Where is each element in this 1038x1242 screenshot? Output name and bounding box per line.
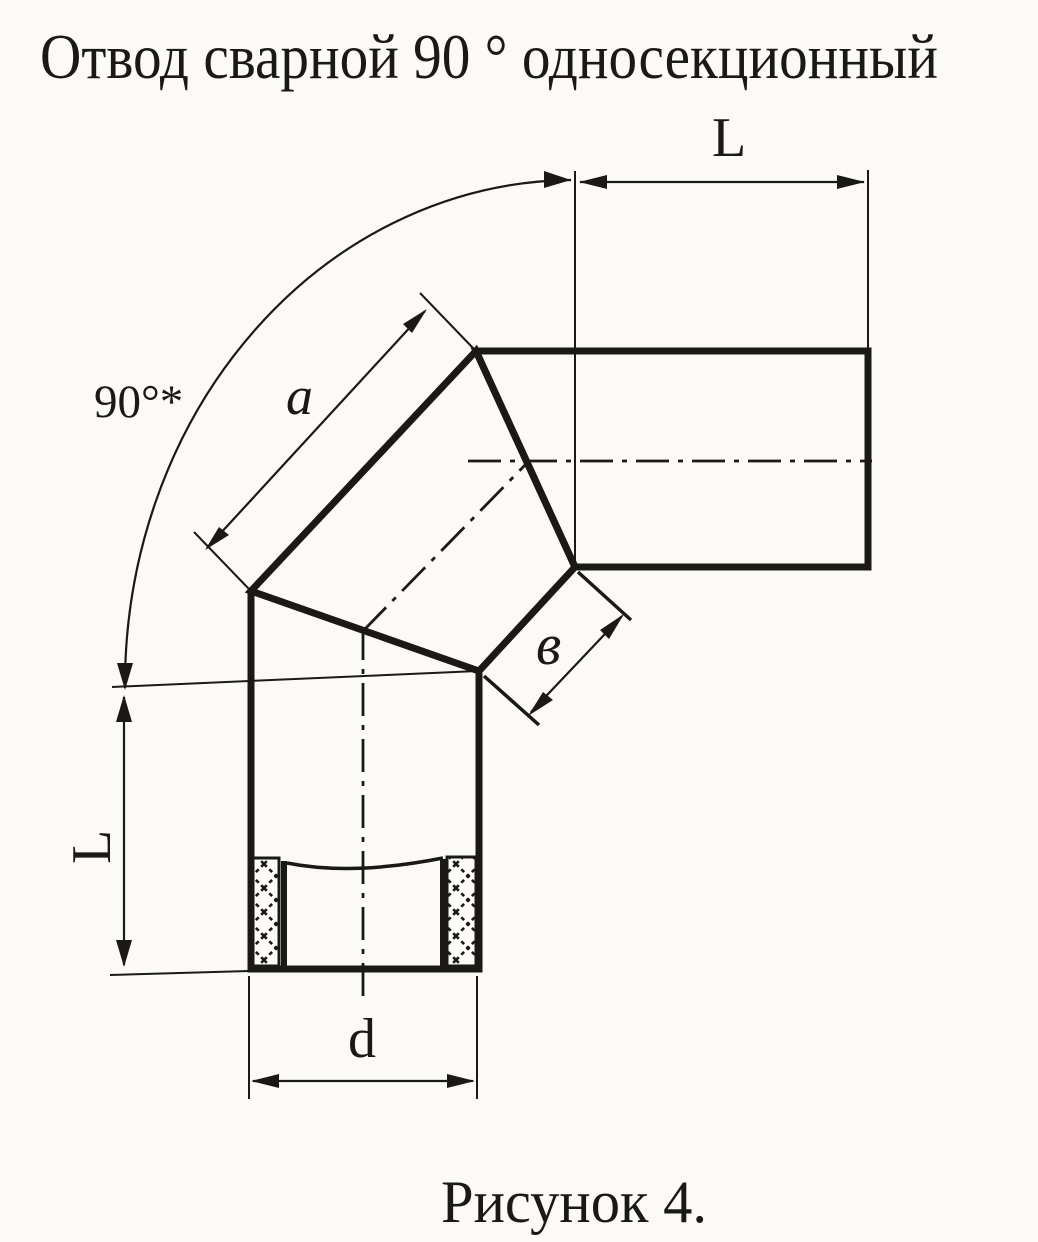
middle-segment-centerline: [363, 462, 528, 631]
diameter-right-arrow-icon: [447, 1074, 475, 1088]
top-length-right-arrow-icon: [837, 175, 865, 189]
figure-caption: Рисунок 4.: [441, 1169, 707, 1235]
diameter-label: d: [348, 1008, 376, 1070]
side-b-lower-arrow-icon: [528, 692, 553, 716]
scanned-drawing-page: Отвод сварной 90 ° односекционный Рисуно…: [0, 0, 1038, 1242]
drawing-title: Отвод сварной 90 ° односекционный: [40, 22, 938, 92]
side-b-upper-extension: [578, 572, 631, 620]
left-length-up-arrow-icon: [116, 695, 132, 722]
angle-value-label: 90°*: [94, 376, 183, 428]
angle-arc: [125, 180, 571, 688]
side-b-lower-extension: [484, 676, 539, 725]
side-a-upper-extension: [420, 293, 473, 348]
left-length-top-extension: [112, 671, 478, 687]
left-length-down-arrow-icon: [116, 940, 132, 967]
top-length-dimension: L: [575, 107, 868, 566]
side-a-lower-arrow-icon: [205, 527, 229, 550]
left-length-bottom-extension: [110, 971, 249, 975]
right-pipe-outline: [476, 351, 868, 567]
top-length-left-arrow-icon: [579, 175, 607, 189]
top-length-label: L: [712, 107, 746, 169]
sleeve-top-edge: [287, 858, 443, 868]
side-b-dimension: в: [484, 572, 631, 725]
side-a-dimension: a: [194, 293, 473, 588]
left-length-label: L: [61, 830, 123, 864]
side-b-label: в: [536, 612, 561, 677]
elbow-technical-drawing: Отвод сварной 90 ° односекционный Рисуно…: [0, 0, 1038, 1242]
side-a-label: a: [286, 366, 313, 426]
left-sleeve-hatch: [252, 858, 279, 966]
angle-arc-top-arrow-icon: [544, 171, 571, 188]
right-sleeve-hatch: [447, 857, 476, 966]
angle-dimension: 90°*: [94, 171, 571, 690]
centerlines: [363, 461, 872, 999]
side-a-lower-extension: [194, 532, 248, 588]
diameter-left-arrow-icon: [251, 1074, 279, 1088]
